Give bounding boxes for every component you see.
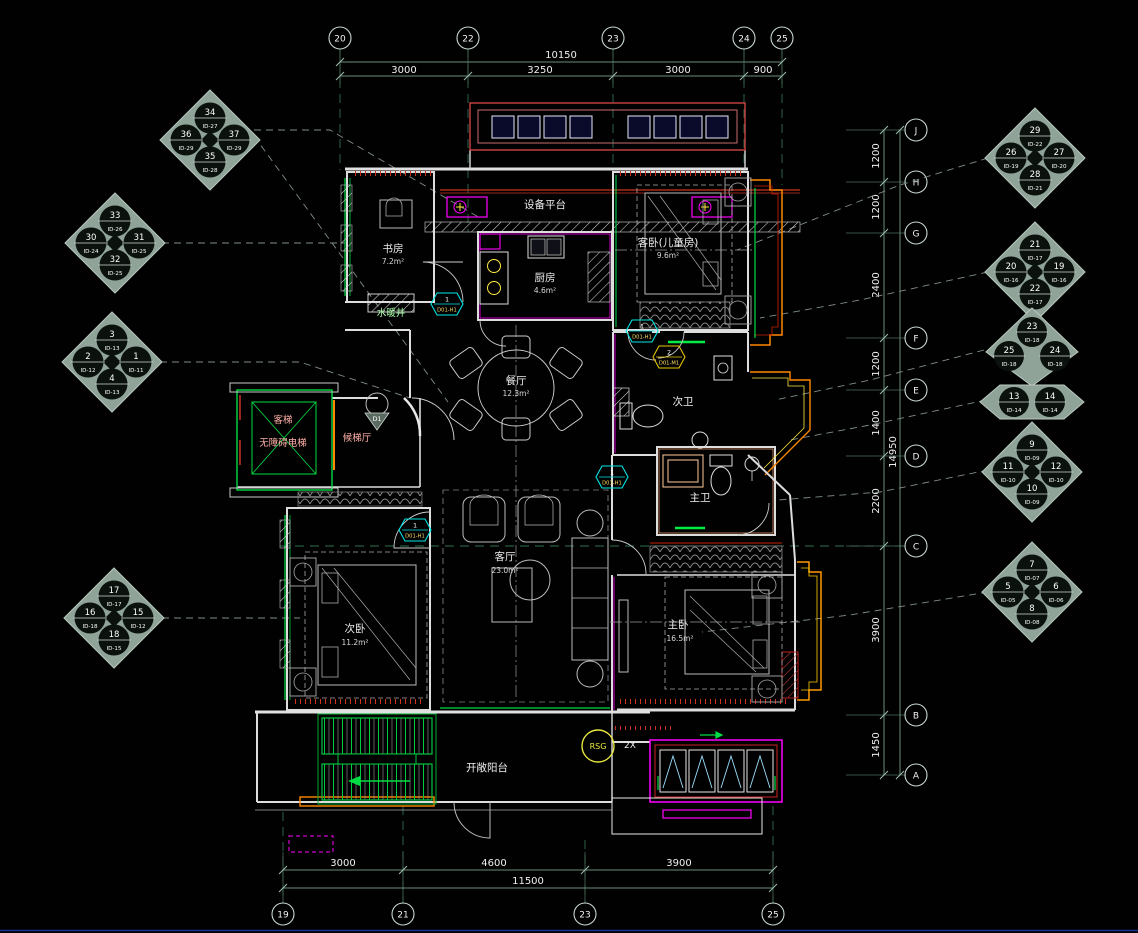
- grid-bubble: 20: [334, 35, 346, 45]
- grid-bubble: G: [913, 230, 920, 240]
- room-area-kitchen: 4.6m²: [534, 286, 556, 295]
- dashed-annotation-box: [289, 836, 333, 852]
- door-tag: 1 D01-H1: [596, 466, 628, 488]
- guest-wardrobe: [640, 302, 730, 328]
- grid-bubble: E: [913, 387, 919, 397]
- dim-top-seg: 3250: [527, 65, 552, 76]
- room-bath2-walls: [613, 332, 748, 455]
- svg-text:16: 16: [85, 608, 96, 618]
- room-label-study: 书房: [383, 242, 404, 255]
- living-furniture: [443, 490, 628, 702]
- grid-bubble: 21: [397, 911, 408, 921]
- svg-text:23: 23: [1027, 322, 1038, 332]
- elevation-marker: 9ID-09 11ID-10 12ID-10 10ID-09: [982, 422, 1082, 522]
- stair-hatch-band: [298, 492, 422, 506]
- elevation-marker: 13ID-14 14ID-14: [980, 385, 1084, 419]
- svg-text:ID-24: ID-24: [83, 249, 99, 255]
- door-tag-code: D01-H1: [602, 481, 622, 487]
- elevation-marker: 33ID-26 30ID-24 31ID-25 32ID-25: [65, 193, 165, 293]
- bay-window-master: [782, 562, 821, 700]
- bath1-fixtures: [663, 455, 759, 495]
- svg-text:34: 34: [205, 108, 216, 118]
- svg-text:14: 14: [1045, 392, 1056, 402]
- svg-text:36: 36: [181, 130, 192, 140]
- study-desk: [380, 200, 412, 228]
- svg-text:7: 7: [1029, 560, 1034, 570]
- svg-text:ID-09: ID-09: [1024, 456, 1040, 462]
- grid-bubble: B: [913, 712, 919, 722]
- door-tag-num: 1: [413, 522, 417, 530]
- svg-text:ID-16: ID-16: [1051, 278, 1067, 284]
- svg-text:12: 12: [1051, 462, 1062, 472]
- svg-text:ID-19: ID-19: [1003, 164, 1019, 170]
- svg-text:ID-11: ID-11: [128, 368, 144, 374]
- grid-bubbles-top: 20 22 23 24 25: [329, 27, 793, 49]
- svg-text:ID-09: ID-09: [1024, 500, 1040, 506]
- grid-bubble: 22: [462, 35, 473, 45]
- room-label-kitchen: 厨房: [535, 271, 556, 284]
- dim-bottom-seg: 4600: [481, 858, 506, 869]
- svg-text:ID-17: ID-17: [1027, 256, 1043, 262]
- grid-bubble: 19: [277, 911, 289, 921]
- grid-bubble: 23: [607, 35, 618, 45]
- x2-label: 2X: [624, 741, 636, 751]
- door-tag-num: 2: [667, 349, 671, 357]
- svg-text:13: 13: [1009, 392, 1020, 402]
- room-label-bath2: 次卫: [673, 395, 694, 408]
- svg-text:10: 10: [1027, 484, 1038, 494]
- svg-text:ID-29: ID-29: [178, 146, 194, 152]
- elevation-marker: 17ID-17 16ID-18 15ID-12 18ID-15: [64, 568, 164, 668]
- dim-right-seg: 2400: [871, 272, 882, 297]
- svg-text:ID-05: ID-05: [1000, 598, 1016, 604]
- dim-top-total: 10150: [545, 50, 577, 61]
- door-tag: 1 D01-H1: [399, 519, 431, 541]
- grid-bubbles-right: J H G F E D C B A: [905, 119, 927, 786]
- svg-text:37: 37: [229, 130, 240, 140]
- svg-text:2: 2: [85, 352, 90, 362]
- door-tag-code: D01-H1: [405, 534, 425, 540]
- grid-bubble: 24: [738, 35, 750, 45]
- bay-window-east: [748, 372, 810, 560]
- svg-text:ID-12: ID-12: [80, 368, 95, 374]
- grid-bubble: 25: [776, 35, 787, 45]
- svg-text:15: 15: [133, 608, 144, 618]
- svg-text:ID-25: ID-25: [107, 271, 123, 277]
- top-window-band: [470, 103, 745, 150]
- svg-text:ID-29: ID-29: [226, 146, 242, 152]
- svg-text:ID-18: ID-18: [1047, 362, 1063, 368]
- svg-text:24: 24: [1050, 346, 1061, 356]
- room-label-bed1: 主卧: [668, 618, 689, 631]
- grid-bubble: 25: [767, 911, 778, 921]
- door-tag-num: 1: [445, 296, 449, 304]
- grid-bubble: J: [914, 127, 918, 137]
- svg-text:35: 35: [205, 152, 216, 162]
- svg-text:ID-18: ID-18: [1001, 362, 1017, 368]
- svg-text:ID-13: ID-13: [104, 346, 120, 352]
- room-study-walls: [341, 172, 434, 302]
- door-tag: 2 D01-M1: [653, 346, 685, 368]
- svg-text:33: 33: [110, 211, 121, 221]
- room-area-living: 23.0m²: [491, 566, 518, 575]
- room-area-bed2: 11.2m²: [341, 638, 368, 647]
- elevation-marker: 23ID-18 25ID-18 24ID-18: [986, 308, 1078, 386]
- room-area-guestbed: 9.6m²: [657, 251, 679, 260]
- svg-text:27: 27: [1054, 148, 1065, 158]
- study-chair: [386, 198, 402, 216]
- dimensions-top: 10150 3000 3250 3000 900: [336, 50, 786, 80]
- svg-text:ID-25: ID-25: [131, 249, 147, 255]
- door-tag: 1 D01-H1: [626, 320, 658, 342]
- svg-text:32: 32: [110, 255, 121, 265]
- room-label-guestbed: 客卧(儿童房): [638, 236, 699, 249]
- svg-text:ID-10: ID-10: [1000, 478, 1016, 484]
- svg-text:ID-22: ID-22: [1027, 142, 1042, 148]
- dim-bottom-total: 11500: [512, 876, 544, 887]
- room-label-equip: 设备平台: [524, 198, 566, 211]
- entry-door-label: D1: [372, 415, 381, 423]
- grid-bubble: F: [913, 335, 918, 345]
- dim-right-seg: 1200: [871, 351, 882, 376]
- stairs: [318, 714, 436, 804]
- svg-text:18: 18: [109, 630, 120, 640]
- room-label-bed2: 次卧: [345, 622, 366, 635]
- room-label-elevator: 客梯: [273, 414, 293, 426]
- balcony-door-arc: [454, 802, 490, 838]
- room-area-dining: 12.3m²: [502, 389, 529, 398]
- floor-plan-canvas: 10150 3000 3250 3000 900 20 22 23 24 25 …: [0, 0, 1138, 933]
- room-area-study: 7.2m²: [382, 257, 404, 266]
- door-tag-code: D01-H1: [437, 308, 457, 314]
- elevation-marker: 34ID-27 36ID-29 37ID-29 35ID-28: [160, 90, 260, 190]
- door-tag-num: 1: [610, 469, 614, 477]
- svg-text:ID-07: ID-07: [1024, 576, 1040, 582]
- dimensions-right: 1200 1200 2400 1200 1400 2200 3900 1450 …: [871, 126, 904, 779]
- dim-top-seg: 3000: [665, 65, 690, 76]
- svg-text:ID-17: ID-17: [1027, 300, 1043, 306]
- room-labels: 书房 7.2m² 设备平台 厨房 4.6m² 客卧(儿童房) 9.6m² 水暖井…: [259, 198, 710, 774]
- door-tag-num: 1: [640, 323, 644, 331]
- leader-lines: [160, 130, 988, 632]
- elevation-marker: 21ID-17 20ID-16 19ID-16 22ID-17: [985, 222, 1085, 322]
- room-label-elevator2: 无障碍电梯: [259, 437, 307, 449]
- svg-text:26: 26: [1006, 148, 1017, 158]
- rsg-marker: RSG: [582, 730, 614, 762]
- svg-text:11: 11: [1003, 462, 1014, 472]
- svg-text:ID-10: ID-10: [1048, 478, 1064, 484]
- svg-text:3: 3: [109, 330, 114, 340]
- dim-right-seg: 1200: [871, 194, 882, 219]
- dim-right-total: 14950: [888, 436, 899, 468]
- dim-right-seg: 1200: [871, 143, 882, 168]
- svg-text:20: 20: [1006, 262, 1017, 272]
- svg-text:22: 22: [1030, 284, 1041, 294]
- grid-bubble: 23: [579, 911, 590, 921]
- dim-bottom-seg: 3000: [330, 858, 355, 869]
- svg-text:29: 29: [1030, 126, 1041, 136]
- svg-text:28: 28: [1030, 170, 1041, 180]
- svg-text:ID-08: ID-08: [1024, 620, 1040, 626]
- svg-text:4: 4: [109, 374, 114, 384]
- window-unit-southeast: [612, 732, 782, 834]
- svg-text:ID-17: ID-17: [106, 602, 122, 608]
- svg-text:ID-18: ID-18: [82, 624, 98, 630]
- svg-text:8: 8: [1029, 604, 1034, 614]
- svg-text:6: 6: [1053, 582, 1058, 592]
- door-tag: 1 D01-H1: [431, 293, 463, 315]
- svg-text:25: 25: [1004, 346, 1015, 356]
- door-tags: 1 D01-H1 1 D01-H1 2 D01-M1 1 D01-H1 1 D0…: [365, 293, 685, 762]
- svg-text:ID-14: ID-14: [1006, 408, 1022, 414]
- svg-text:ID-28: ID-28: [202, 168, 218, 174]
- door-tag-code: D01-M1: [659, 361, 679, 367]
- svg-text:1: 1: [133, 352, 138, 362]
- svg-text:ID-20: ID-20: [1051, 164, 1067, 170]
- cad-viewport[interactable]: 10150 3000 3250 3000 900 20 22 23 24 25 …: [0, 0, 1138, 933]
- elevation-marker: 7ID-07 5ID-05 6ID-06 8ID-08: [982, 542, 1082, 642]
- svg-text:30: 30: [86, 233, 97, 243]
- bay-window-guest: [750, 180, 782, 345]
- dim-right-seg: 1450: [871, 732, 882, 757]
- dimensions-bottom: 3000 4600 3900 11500: [279, 858, 777, 892]
- svg-text:31: 31: [134, 233, 145, 243]
- room-label-dining: 餐厅: [506, 374, 527, 387]
- master-wardrobe: [650, 546, 782, 572]
- svg-text:17: 17: [109, 586, 120, 596]
- room-label-shaft: 水暖井: [377, 307, 406, 319]
- dim-top-seg: 3000: [391, 65, 416, 76]
- room-label-living: 客厅: [495, 550, 516, 563]
- svg-text:ID-21: ID-21: [1027, 186, 1043, 192]
- elevation-markers: 34ID-27 36ID-29 37ID-29 35ID-28 33ID-26 …: [62, 90, 1085, 668]
- svg-text:ID-15: ID-15: [106, 646, 122, 652]
- dim-right-seg: 3900: [871, 617, 882, 642]
- svg-text:ID-16: ID-16: [1003, 278, 1019, 284]
- grid-bubble: A: [913, 772, 920, 782]
- svg-text:ID-14: ID-14: [1042, 408, 1058, 414]
- svg-text:ID-06: ID-06: [1048, 598, 1064, 604]
- svg-text:ID-26: ID-26: [107, 227, 123, 233]
- door-tag-code: D01-H1: [632, 335, 652, 341]
- svg-text:21: 21: [1030, 240, 1041, 250]
- svg-text:ID-13: ID-13: [104, 390, 120, 396]
- rsg-label: RSG: [590, 742, 607, 751]
- grid-bubble: D: [913, 453, 920, 463]
- svg-text:ID-18: ID-18: [1024, 338, 1040, 344]
- elevation-marker: 29ID-22 26ID-19 27ID-20 28ID-21: [985, 108, 1085, 208]
- dim-bottom-seg: 3900: [666, 858, 691, 869]
- room-area-bed1: 16.5m²: [666, 634, 693, 643]
- room-label-lobby: 候梯厅: [343, 432, 372, 444]
- svg-text:9: 9: [1029, 440, 1034, 450]
- room-label-balcony: 开敞阳台: [466, 761, 508, 774]
- grid-bubble: C: [913, 543, 919, 553]
- dim-top-seg: 900: [753, 65, 772, 76]
- grid-bubbles-bottom: 19 21 23 25: [272, 903, 784, 925]
- svg-text:ID-27: ID-27: [202, 124, 218, 130]
- room-label-bath1: 主卫: [690, 492, 711, 504]
- svg-text:ID-12: ID-12: [130, 624, 145, 630]
- svg-text:19: 19: [1054, 262, 1065, 272]
- svg-text:5: 5: [1005, 582, 1010, 592]
- elevation-marker: 3ID-13 2ID-12 1ID-11 4ID-13: [62, 312, 162, 412]
